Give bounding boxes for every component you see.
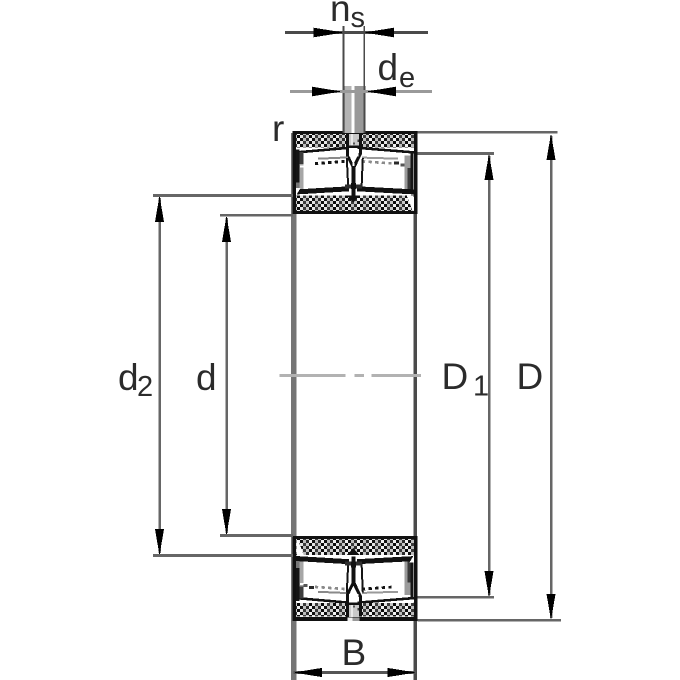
svg-text:B: B <box>342 632 367 673</box>
svg-text:D: D <box>517 356 544 397</box>
svg-text:r: r <box>272 108 284 149</box>
svg-text:s: s <box>351 2 366 34</box>
svg-text:2: 2 <box>137 371 153 403</box>
svg-text:n: n <box>330 0 351 29</box>
svg-text:D: D <box>442 356 469 397</box>
svg-text:e: e <box>399 62 415 94</box>
svg-text:1: 1 <box>473 371 489 403</box>
svg-text:d: d <box>378 47 399 88</box>
svg-text:d: d <box>196 357 217 398</box>
svg-text:d: d <box>118 357 139 398</box>
